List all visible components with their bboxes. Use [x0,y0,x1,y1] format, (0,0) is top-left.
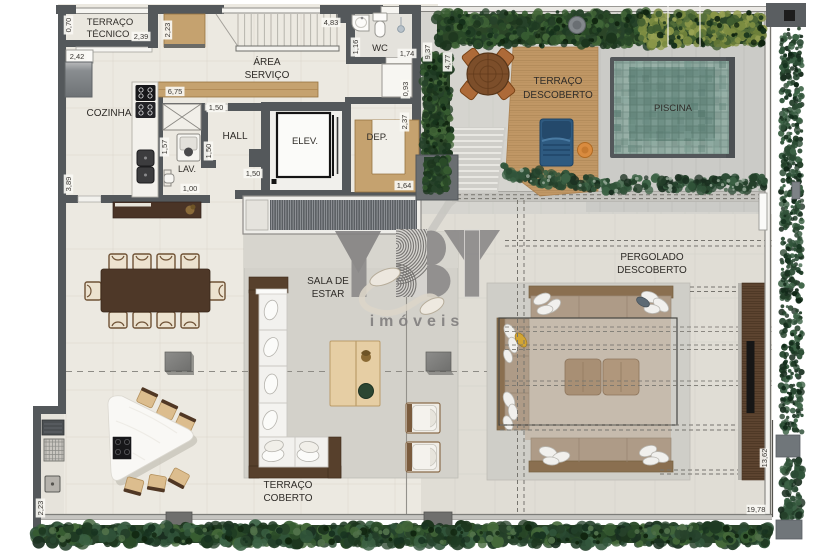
svg-text:ÁREA: ÁREA [253,55,281,68]
svg-text:4,77: 4,77 [443,55,452,70]
svg-text:1,57: 1,57 [160,140,169,155]
svg-text:2,42: 2,42 [70,52,85,61]
svg-text:6,75: 6,75 [168,87,183,96]
svg-text:TERRAÇO: TERRAÇO [264,480,313,491]
svg-text:0,93: 0,93 [401,82,410,97]
svg-text:TERRAÇO: TERRAÇO [87,17,133,28]
svg-text:0,70: 0,70 [64,18,73,33]
svg-text:1,16: 1,16 [351,40,360,55]
svg-text:13,62: 13,62 [760,449,769,468]
svg-text:DESCOBERTO: DESCOBERTO [523,90,593,101]
svg-text:2,23: 2,23 [163,23,172,38]
svg-text:3,89: 3,89 [64,177,73,192]
svg-text:SERVIÇO: SERVIÇO [245,70,290,81]
svg-text:TERRAÇO: TERRAÇO [534,76,583,87]
svg-text:2,37: 2,37 [400,115,409,130]
svg-text:imóveis: imóveis [370,313,465,330]
svg-text:WC: WC [372,43,388,54]
svg-text:SALA DE: SALA DE [307,276,349,287]
svg-text:PERGOLADO: PERGOLADO [620,252,684,263]
svg-text:DEP.: DEP. [367,132,388,143]
svg-text:HALL: HALL [222,131,247,142]
svg-text:PISCINA: PISCINA [654,103,693,114]
svg-text:4,83: 4,83 [324,18,339,27]
svg-text:9,37: 9,37 [423,45,432,60]
svg-text:19,78: 19,78 [747,505,766,514]
svg-text:COBERTO: COBERTO [263,493,312,504]
svg-text:ELEV.: ELEV. [292,136,318,147]
svg-text:1,50: 1,50 [246,169,261,178]
svg-text:LAV.: LAV. [178,164,196,174]
svg-text:2,39: 2,39 [134,32,149,41]
svg-text:ESTAR: ESTAR [312,289,345,300]
svg-text:1,00: 1,00 [183,184,198,193]
svg-text:2,23: 2,23 [36,501,45,516]
svg-text:TÉCNICO: TÉCNICO [87,29,130,40]
svg-text:1,64: 1,64 [397,181,412,190]
svg-text:1,74: 1,74 [400,49,415,58]
svg-text:DESCOBERTO: DESCOBERTO [617,265,687,276]
svg-text:1,50: 1,50 [204,144,213,159]
svg-text:1,50: 1,50 [209,103,224,112]
svg-text:COZINHA: COZINHA [87,108,132,119]
